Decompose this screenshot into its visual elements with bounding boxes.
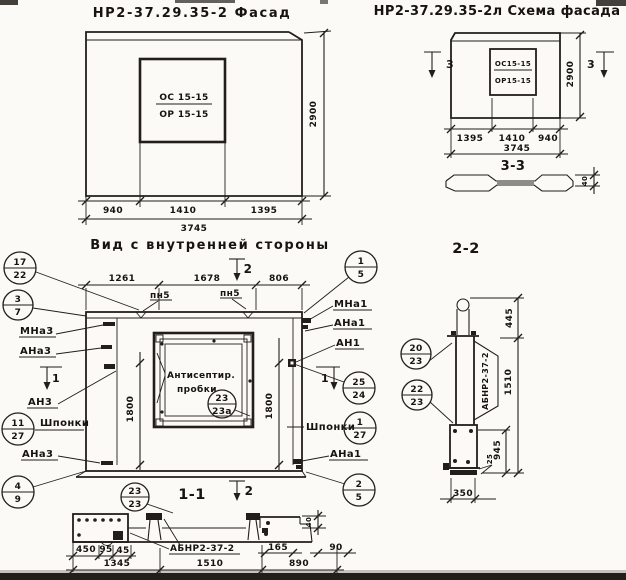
inner-pn5-left: пн5: [150, 291, 170, 301]
circle-20-23-bottom: 23: [409, 357, 422, 367]
facade-dim-3745: 3745: [181, 224, 208, 234]
inner-pn5-right: пн5: [220, 289, 240, 299]
schema-dim-1395: 1395: [457, 134, 484, 144]
circle-23-23-bottom: 23: [128, 500, 141, 510]
section-mark-2-bottom-label: 2: [245, 484, 254, 498]
sec11-dim-40: 40: [305, 517, 313, 528]
label-ana3: АНа3: [20, 346, 51, 357]
inner-note-line2: пробки: [177, 384, 217, 395]
circle-17-22-top: 17: [13, 258, 26, 268]
facade-dim-1410: 1410: [170, 206, 197, 216]
section-mark-3-left: 3: [424, 52, 454, 78]
circle-1-27-top: 1: [357, 418, 364, 428]
schema-view: НР2-37.29.35-2л Схема фасада ОС15-15 ОР1…: [374, 4, 621, 158]
circle-2-5: 2 5: [306, 472, 375, 506]
inner-view: Вид с внутренней стороны 2 1261 1678 806…: [19, 238, 372, 503]
section-1-1-title: 1-1: [178, 487, 205, 503]
section-mark-3-left-label: 3: [446, 58, 454, 71]
sec11-dim-450: 450: [76, 545, 96, 555]
circle-11-27: 11 27: [2, 413, 34, 445]
circle-11-27-top: 11: [11, 419, 24, 429]
circle-23-23-top: 23: [128, 487, 141, 497]
circle-1-27-bottom: 27: [353, 431, 366, 441]
circle-22-23: 22 23: [402, 380, 453, 423]
sec22-dim-445: 445: [505, 308, 515, 328]
section-2-2-title: 2-2: [452, 241, 479, 257]
label-an3: АН3: [28, 397, 52, 408]
inner-note-line1: Антисептир.: [167, 371, 235, 381]
circle-23-23: 23 23: [121, 483, 173, 513]
sec11-dim-95: 95: [99, 545, 112, 555]
facade-dim-940: 940: [103, 206, 123, 216]
sec11-dim-165: 165: [268, 543, 288, 553]
sec22-dim-945: 945: [493, 440, 503, 460]
inner-dim-1800-left: 1800: [126, 396, 136, 423]
circle-22-23-bottom: 23: [410, 398, 423, 408]
label-shponki-left: Шпонки: [40, 418, 89, 429]
circle-25-24-bottom: 24: [352, 391, 365, 401]
circle-2-5-top: 2: [356, 480, 363, 490]
inner-dim-1800-right: 1800: [265, 393, 275, 420]
circle-17-22-bottom: 22: [13, 271, 26, 281]
inner-dim-1261: 1261: [109, 274, 136, 284]
circle-11-27-bottom: 27: [11, 432, 24, 442]
circle-3-7-top: 3: [15, 295, 22, 305]
sec22-dim-350: 350: [453, 489, 473, 499]
section-mark-3-right: 3: [587, 52, 614, 78]
section-mark-1-right: 1: [316, 367, 340, 390]
circle-22-23-top: 22: [410, 385, 423, 395]
circle-3-7-bottom: 7: [15, 308, 22, 318]
circle-4-9-bottom: 9: [15, 495, 22, 505]
inner-view-title: Вид с внутренней стороны: [90, 238, 330, 253]
label-ana1-lower: АНа1: [330, 449, 361, 460]
schema-window-opening: [490, 49, 536, 95]
section-mark-2-top-label: 2: [244, 262, 253, 276]
sec22-dim-1510: 1510: [504, 369, 514, 396]
schema-window-mark-top: ОС15-15: [495, 60, 531, 68]
circle-3-7: 3 7: [3, 290, 86, 320]
facade-window-mark-bottom: ОР 15-15: [159, 110, 208, 120]
label-mna3: МНа3: [20, 326, 54, 337]
circle-4-9-top: 4: [15, 482, 22, 492]
sec22-dim-25: 25: [486, 454, 494, 465]
facade-dim-1395: 1395: [251, 206, 278, 216]
schema-title: НР2-37.29.35-2л Схема фасада: [374, 4, 621, 19]
technical-drawing-sheet: НР2-37.29.35-2 Фасад ОС 15-15 ОР 15-15 2…: [0, 0, 626, 580]
sec11-dim-1510: 1510: [197, 559, 224, 569]
section-1-1: 450 95 45 1345 1510 890 165 90 40 АБНР2-…: [66, 510, 356, 574]
circle-23-23a-bottom: 23а: [212, 407, 232, 417]
section-2-2: 2-2 АБНР2-37-2 20 23 22 23: [401, 241, 524, 503]
inner-dim-806: 806: [269, 274, 289, 284]
circle-1-5-bottom: 5: [358, 270, 365, 280]
section-3-3-title: 3-3: [501, 159, 526, 174]
circle-20-23-top: 20: [409, 344, 422, 354]
inner-dim-1678: 1678: [194, 274, 221, 284]
sec11-dim-1345: 1345: [104, 559, 131, 569]
scan-artifacts: [0, 0, 626, 580]
sec11-dim-45: 45: [116, 546, 129, 556]
label-an1: АН1: [336, 338, 360, 349]
section-mark-1-left: 1: [40, 367, 62, 390]
circle-1-5-top: 1: [358, 257, 365, 267]
facade-view: НР2-37.29.35-2 Фасад ОС 15-15 ОР 15-15 2…: [78, 6, 331, 234]
schema-dim-1410: 1410: [499, 134, 526, 144]
schema-dim-height: 2900: [566, 61, 576, 88]
facade-window-mark-top: ОС 15-15: [159, 93, 208, 103]
circle-1-27: 1 27: [344, 412, 376, 444]
facade-title: НР2-37.29.35-2 Фасад: [93, 6, 292, 21]
section-3-3: 3-3 40: [446, 159, 600, 194]
circle-20-23: 20 23: [401, 339, 452, 369]
schema-dim-940: 940: [538, 134, 558, 144]
sec11-brand-label: АБНР2-37-2: [170, 544, 234, 554]
schema-window-mark-bottom: ОР15-15: [495, 77, 531, 85]
section-mark-2-bottom: 2: [229, 481, 253, 501]
sec11-dim-890: 890: [289, 559, 309, 569]
circle-23-23a-top: 23: [215, 394, 228, 404]
section-mark-1-left-label: 1: [52, 372, 60, 385]
circle-25-24-top: 25: [352, 378, 365, 388]
label-ana3-lower: АНа3: [22, 449, 53, 460]
section-mark-2-top: 2: [229, 259, 252, 281]
circle-2-5-bottom: 5: [356, 493, 363, 503]
sec22-brand-label: АБНР2-37-2: [481, 352, 490, 410]
section-mark-3-right-label: 3: [587, 58, 595, 71]
schema-dim-3745: 3745: [504, 144, 531, 154]
facade-dim-height: 2900: [309, 101, 319, 128]
label-mna1: МНа1: [334, 299, 368, 310]
circle-4-9: 4 9: [2, 471, 86, 508]
panel-drawing-svg: НР2-37.29.35-2 Фасад ОС 15-15 ОР 15-15 2…: [0, 0, 626, 580]
label-ana1: АНа1: [334, 318, 365, 329]
section-3-3-dim-40: 40: [581, 176, 589, 187]
sec11-dim-90: 90: [329, 543, 342, 553]
